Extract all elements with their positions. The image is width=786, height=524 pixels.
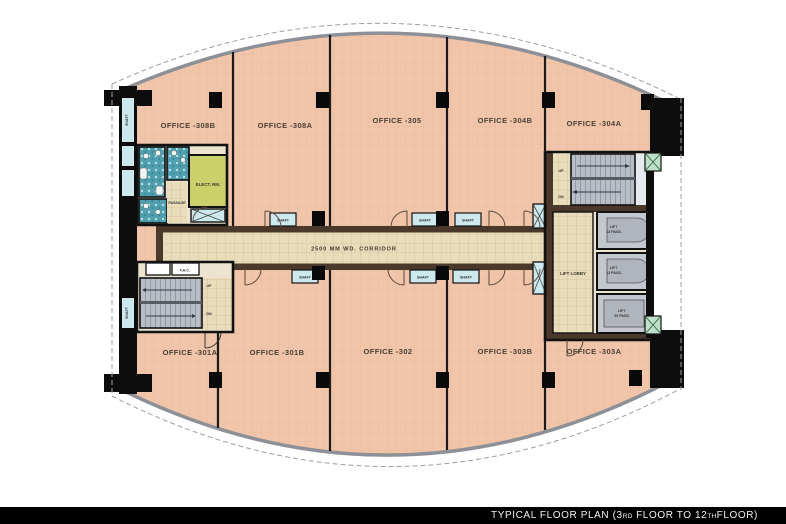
lift-3: LIFT 20 PASS. [597,294,652,333]
lift-2: LIFT 13 PASS. [597,253,652,290]
title-text-suffix: FLOOR) [717,510,758,521]
shaft-label: SHAFT [419,219,432,223]
toilet-room [139,199,167,223]
shaft-label: SHAFT [299,276,312,280]
shaft-label: SHAFT [462,219,475,223]
title-ordinal-th: TH [707,513,716,520]
floor-plan-sheet: 2500 MM WD. CORRIDOR PASSAGE ELECT. RM. … [0,0,786,524]
office-label-305: OFFICE -305 [373,116,422,125]
shaft-label: SHAFT [125,113,129,126]
stair-dn-label: DN [558,195,564,199]
title-text-prefix: TYPICAL FLOOR PLAN (3 [491,510,623,521]
stair-up-label: UP [207,284,213,288]
shaft-label: SHAFT [460,276,473,280]
office-label-301b: OFFICE -301B [250,348,305,357]
passage-label: PASSAGE [168,201,186,205]
office-label-304a: OFFICE -304A [567,119,622,128]
stair-right: UP DN [553,154,648,205]
core-right: UP DN LIFT LOBBY LIFT 13 PASS. LIFT 13 P… [533,152,652,340]
right-wall [645,98,698,388]
toilet-block: PASSAGE ELECT. RM. [137,145,227,225]
shaft-label: SHAFT [417,276,430,280]
stair-dn-label: DN [206,312,212,316]
title-ordinal-rd: RD [623,513,633,520]
stair-up-label: UP [559,169,565,173]
office-label-304b: OFFICE -304B [478,116,533,125]
elect-room [189,155,227,207]
floor-plan-drawing: 2500 MM WD. CORRIDOR PASSAGE ELECT. RM. … [0,0,786,507]
corridor-label: 2500 MM WD. CORRIDOR [311,247,397,253]
lift-1: LIFT 13 PASS. [597,212,652,249]
office-label-308b: OFFICE -308B [161,121,216,130]
fhc-box [146,263,170,275]
office-label-302: OFFICE -302 [364,347,413,356]
office-label-303b: OFFICE -303B [478,347,533,356]
office-label-301a: OFFICE -301A [163,348,218,357]
hatched-shaft [191,209,225,222]
shaft-label: SHAFT [125,306,129,319]
fhc-label: F.H.C. [180,269,190,273]
office-label-303a: OFFICE -303A [567,347,622,356]
title-bar: TYPICAL FLOOR PLAN (3RD FLOOR TO 12TH FL… [0,507,786,524]
lift-lobby-label: LIFT LOBBY [560,271,586,276]
title-text-mid: FLOOR TO 12 [633,510,708,521]
toilet-room [167,147,189,180]
elect-room-label: ELECT. RM. [196,182,220,187]
office-label-308a: OFFICE -308A [258,121,313,130]
